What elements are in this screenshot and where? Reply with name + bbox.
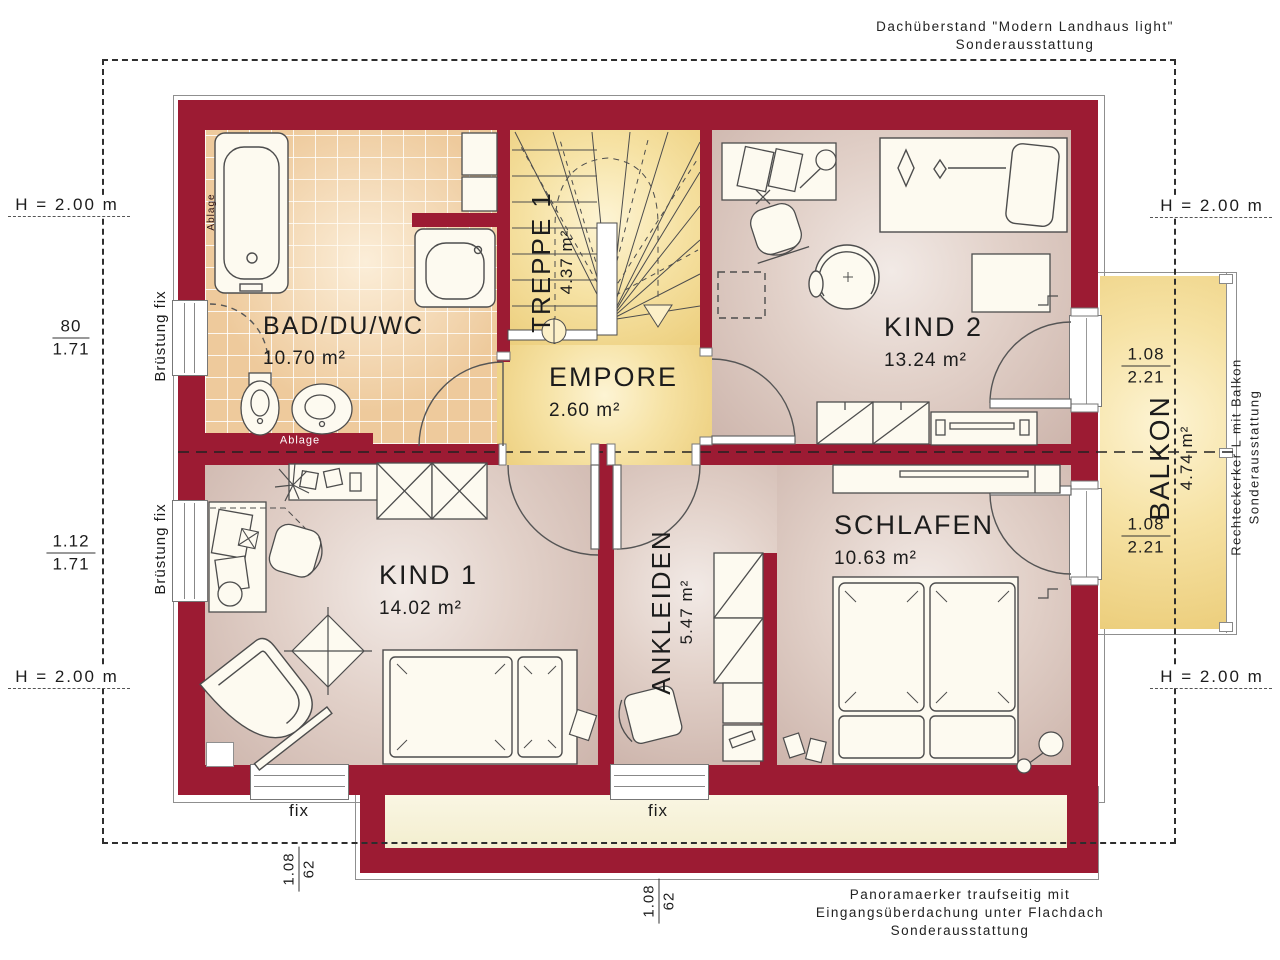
room-treppe-area: 4.37 m² — [557, 191, 577, 333]
room-label-schlafen: SCHLAFEN 10.63 m² — [834, 510, 994, 570]
dim-balcony-bottom-den: 2.21 — [1121, 537, 1170, 558]
dim-balcony-bottom-num: 1.08 — [1121, 515, 1170, 537]
room-ankleiden-name: ANKLEIDEN — [646, 529, 677, 694]
room-label-bad: BAD/DU/WC 10.70 m² — [263, 312, 424, 370]
dim-left-bottom-num: 1.12 — [46, 532, 95, 554]
room-schlafen-area: 10.63 m² — [834, 548, 994, 570]
bruestung-label-bottom: Brüstung fix — [152, 503, 170, 594]
dim-bay-mid-num: 1.08 — [641, 878, 660, 923]
room-balkon-area: 4.74 m² — [1177, 395, 1197, 521]
room-label-empore: EMPORE 2.60 m² — [549, 362, 678, 422]
dim-balcony-top-den: 2.21 — [1121, 367, 1170, 388]
dim-bay-left: 1.08 62 — [281, 846, 318, 891]
dim-bay-mid-den: 62 — [660, 878, 678, 923]
room-label-kind2: KIND 2 13.24 m² — [884, 312, 983, 372]
room-kind2-area: 13.24 m² — [884, 350, 983, 372]
h-underline-bottom-right — [1150, 688, 1272, 689]
room-label-treppe: TREPPE 1 4.37 m² — [526, 191, 578, 333]
room-bad-area: 10.70 m² — [263, 348, 424, 370]
h-underline-top-right — [1150, 217, 1272, 218]
annotation-panorama: Panoramaerker traufseitig mit Eingangsüb… — [790, 886, 1130, 941]
ablage-label-vertical: Ablage — [206, 193, 218, 230]
dim-left-top-num: 80 — [52, 317, 89, 339]
height-label-top-right: H = 2.00 m — [1157, 196, 1267, 216]
height-label-bottom-left: H = 2.00 m — [12, 667, 122, 687]
room-treppe-name: TREPPE 1 — [526, 191, 557, 333]
annotation-roof-line1: Dachüberstand "Modern Landhaus light" — [870, 18, 1180, 36]
h-underline-top-left — [8, 216, 130, 217]
dim-bay-mid: 1.08 62 — [641, 878, 678, 923]
annotation-roof-line2: Sonderausstattung — [870, 36, 1180, 54]
room-balkon-name: BALKON — [1143, 395, 1177, 521]
h-underline-bottom-left — [8, 688, 130, 689]
height-label-top-left: H = 2.00 m — [12, 195, 122, 215]
annotation-roof-overhang: Dachüberstand "Modern Landhaus light" So… — [870, 18, 1180, 54]
room-label-ankleiden: ANKLEIDEN 5.47 m² — [646, 529, 698, 694]
fix-label-left: fix — [289, 801, 309, 821]
room-empore-area: 2.60 m² — [549, 400, 678, 422]
height-label-bottom-right: H = 2.00 m — [1157, 667, 1267, 687]
dim-balcony-top-num: 1.08 — [1121, 345, 1170, 367]
annotation-balcony-line1: Rechteckerker L mit Balkon — [1227, 358, 1245, 555]
room-kind2-name: KIND 2 — [884, 312, 983, 343]
dim-balcony-top: 1.08 2.21 — [1121, 345, 1170, 388]
dim-bay-left-den: 62 — [300, 846, 318, 891]
annotation-balcony: Rechteckerker L mit Balkon Sonderausstat… — [1227, 358, 1262, 555]
room-empore-name: EMPORE — [549, 362, 678, 393]
room-bad-name: BAD/DU/WC — [263, 312, 424, 341]
room-schlafen-name: SCHLAFEN — [834, 510, 994, 541]
dim-left-bottom: 1.12 1.71 — [46, 532, 95, 575]
floor-plan: BAD/DU/WC 10.70 m² EMPORE 2.60 m² KIND 2… — [0, 0, 1280, 960]
room-kind1-name: KIND 1 — [379, 560, 478, 591]
dim-balcony-bottom: 1.08 2.21 — [1121, 515, 1170, 558]
ablage-label-shelf: Ablage — [280, 435, 320, 448]
roof-overhang-outline — [102, 59, 1176, 844]
annotation-panorama-line1: Panoramaerker traufseitig mit — [790, 886, 1130, 904]
dim-left-top-den: 1.71 — [52, 339, 89, 360]
room-label-kind1: KIND 1 14.02 m² — [379, 560, 478, 620]
room-label-balkon: BALKON 4.74 m² — [1143, 395, 1197, 521]
annotation-panorama-line3: Sonderausstattung — [790, 922, 1130, 940]
dim-left-top: 80 1.71 — [52, 317, 89, 360]
annotation-balcony-line2: Sonderausstattung — [1245, 358, 1263, 555]
annotation-panorama-line2: Eingangsüberdachung unter Flachdach — [790, 904, 1130, 922]
dim-bay-left-num: 1.08 — [281, 846, 300, 891]
room-kind1-area: 14.02 m² — [379, 598, 478, 620]
dim-left-bottom-den: 1.71 — [46, 554, 95, 575]
bruestung-label-top: Brüstung fix — [152, 290, 170, 381]
fix-label-mid: fix — [648, 801, 668, 821]
room-ankleiden-area: 5.47 m² — [677, 529, 697, 694]
